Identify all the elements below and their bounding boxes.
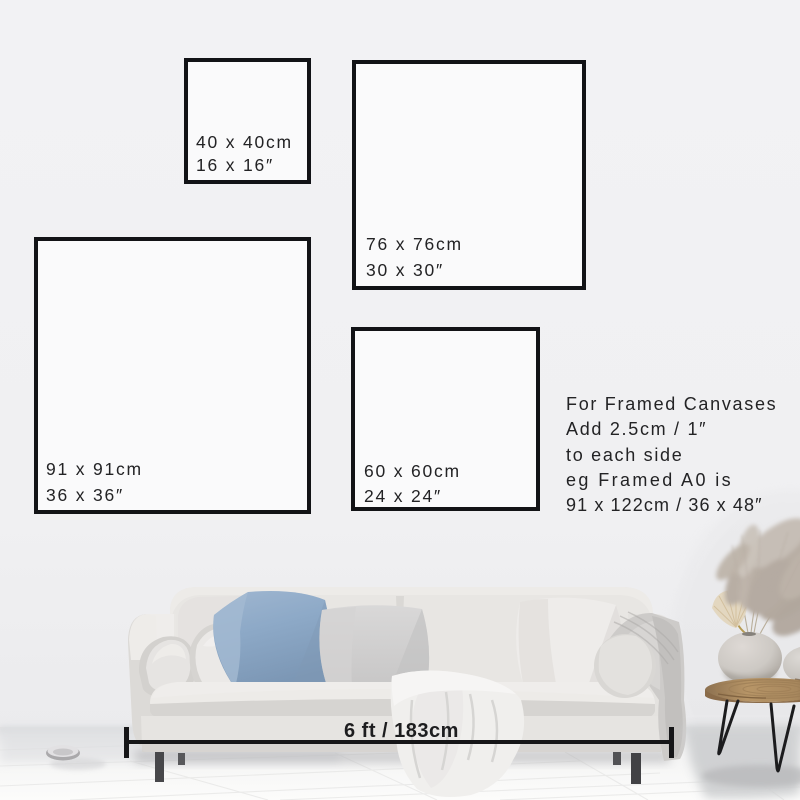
svg-text:For Framed Canvases: For Framed Canvases bbox=[566, 394, 777, 414]
svg-text:6 ft / 183cm: 6 ft / 183cm bbox=[344, 720, 459, 742]
svg-text:30 x 30″: 30 x 30″ bbox=[366, 260, 444, 280]
svg-text:91 x 91cm: 91 x 91cm bbox=[46, 459, 143, 479]
svg-text:24 x 24″: 24 x 24″ bbox=[364, 486, 442, 506]
svg-text:eg Framed A0 is: eg Framed A0 is bbox=[566, 470, 733, 490]
svg-text:16 x 16″: 16 x 16″ bbox=[196, 155, 274, 175]
svg-text:Add 2.5cm / 1″: Add 2.5cm / 1″ bbox=[566, 419, 707, 439]
svg-text:to each side: to each side bbox=[566, 445, 683, 465]
svg-text:40 x 40cm: 40 x 40cm bbox=[196, 132, 293, 152]
svg-text:76 x 76cm: 76 x 76cm bbox=[366, 234, 463, 254]
svg-text:36 x 36″: 36 x 36″ bbox=[46, 485, 124, 505]
svg-text:60 x 60cm: 60 x 60cm bbox=[364, 461, 461, 481]
svg-text:91 x 122cm / 36 x 48″: 91 x 122cm / 36 x 48″ bbox=[566, 495, 763, 515]
